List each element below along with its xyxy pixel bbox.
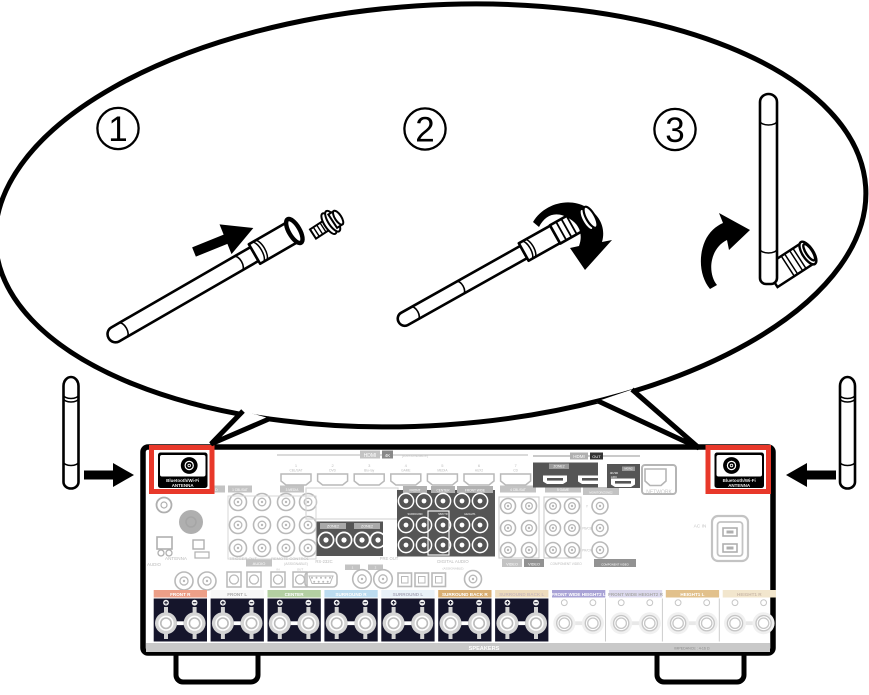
svg-text:CENTER: CENTER [436, 489, 450, 493]
svg-text:AUDIO: AUDIO [147, 562, 161, 567]
svg-text:TRIGGER OUT: TRIGGER OUT [229, 556, 257, 561]
svg-text:DIGITAL AUDIO: DIGITAL AUDIO [437, 559, 469, 564]
svg-text:ANTENNA: ANTENNA [728, 483, 751, 488]
svg-text:1: 1 [108, 110, 127, 149]
svg-text:AC IN: AC IN [694, 524, 707, 530]
svg-text:MON2: MON2 [624, 467, 633, 471]
svg-text:RS-232C: RS-232C [315, 559, 332, 564]
svg-text:2: 2 [415, 111, 434, 150]
svg-text:SURROUND L: SURROUND L [393, 592, 424, 597]
svg-text:SURROUND BACK R: SURROUND BACK R [442, 592, 488, 597]
svg-text:ARC: ARC [611, 475, 618, 479]
svg-text:SURROUND BACK L: SURROUND BACK L [499, 592, 544, 597]
svg-text:FRONT WIDE HEIGHT2 L: FRONT WIDE HEIGHT2 L [551, 592, 606, 597]
svg-text:OUT: OUT [592, 454, 601, 459]
svg-text:VIDEO: VIDEO [506, 563, 518, 567]
svg-text:(ASSIGNABLE): (ASSIGNABLE) [284, 562, 308, 566]
svg-text:IN: IN [277, 568, 280, 572]
svg-text:MEDIA: MEDIA [437, 469, 448, 473]
svg-text:ZONE2: ZONE2 [553, 465, 564, 469]
svg-text:IMPEDANCE : 4-16 Ω: IMPEDANCE : 4-16 Ω [674, 647, 710, 651]
svg-text:3 MEDIA: 3 MEDIA [286, 488, 300, 492]
svg-text:MONITOR/ZONE2: MONITOR/ZONE2 [589, 491, 613, 495]
svg-text:OUT: OUT [297, 568, 304, 572]
svg-text:NETWORK: NETWORK [646, 490, 672, 496]
svg-text:(ASSIGNABLE): (ASSIGNABLE) [442, 567, 463, 571]
svg-text:COMPONENT VIDEO: COMPONENT VIDEO [550, 562, 582, 566]
svg-text:VIDEO: VIDEO [528, 563, 540, 567]
svg-text:HEIGHT1 R: HEIGHT1 R [737, 592, 762, 597]
svg-text:4 CBL/SAT: 4 CBL/SAT [510, 488, 526, 492]
svg-text:PRE OUT: PRE OUT [380, 556, 399, 561]
svg-text:3: 3 [665, 111, 684, 150]
svg-text:REMOTE CONTROL: REMOTE CONTROL [271, 556, 310, 561]
svg-text:CENTER: CENTER [285, 592, 305, 597]
svg-text:SURROUND R: SURROUND R [335, 592, 367, 597]
svg-text:ANTENNA: ANTENNA [165, 556, 188, 561]
svg-text:SPEAKERS: SPEAKERS [469, 646, 500, 652]
svg-text:HEIGHT1 L: HEIGHT1 L [680, 592, 704, 597]
svg-text:SURROUND: SURROUND [408, 512, 423, 516]
svg-text:CBL/SAT: CBL/SAT [289, 469, 302, 473]
svg-text:Blu-ray: Blu-ray [364, 469, 375, 473]
svg-text:CD: CD [513, 469, 518, 473]
svg-text:HDMI: HDMI [364, 453, 377, 459]
svg-text:DVD: DVD [329, 469, 336, 473]
svg-text:HDMI: HDMI [573, 454, 585, 459]
svg-text:AUX2: AUX2 [475, 469, 484, 473]
svg-text:FRONT R: FRONT R [170, 592, 191, 597]
svg-text:4K: 4K [385, 453, 391, 458]
svg-text:HEIGHT1: HEIGHT1 [464, 512, 476, 516]
svg-text:PB/CB: PB/CB [582, 527, 592, 531]
svg-text:FRONT L: FRONT L [227, 592, 247, 597]
svg-text:FRONT: FRONT [410, 489, 421, 493]
svg-text:ZONE2: ZONE2 [327, 525, 339, 529]
svg-text:AUDIO: AUDIO [253, 561, 266, 566]
svg-text:SB/CTR: SB/CTR [438, 512, 448, 516]
svg-text:5 GAME: 5 GAME [557, 488, 569, 492]
svg-text:PR/CR: PR/CR [582, 549, 593, 553]
svg-text:1 CBL/SAT: 1 CBL/SAT [232, 488, 248, 492]
svg-text:GAME: GAME [401, 469, 410, 473]
svg-text:FRONT WIDE HEIGHT2 R: FRONT WIDE HEIGHT2 R [608, 592, 664, 597]
svg-text:ANTENNA: ANTENNA [172, 483, 195, 488]
svg-text:FRONT WIDE: FRONT WIDE [465, 489, 485, 493]
svg-text:(ASSIGNABLE): (ASSIGNABLE) [402, 454, 429, 458]
svg-text:ZONE2: ZONE2 [361, 525, 373, 529]
svg-text:COMPONENT VIDEO: COMPONENT VIDEO [601, 563, 629, 567]
